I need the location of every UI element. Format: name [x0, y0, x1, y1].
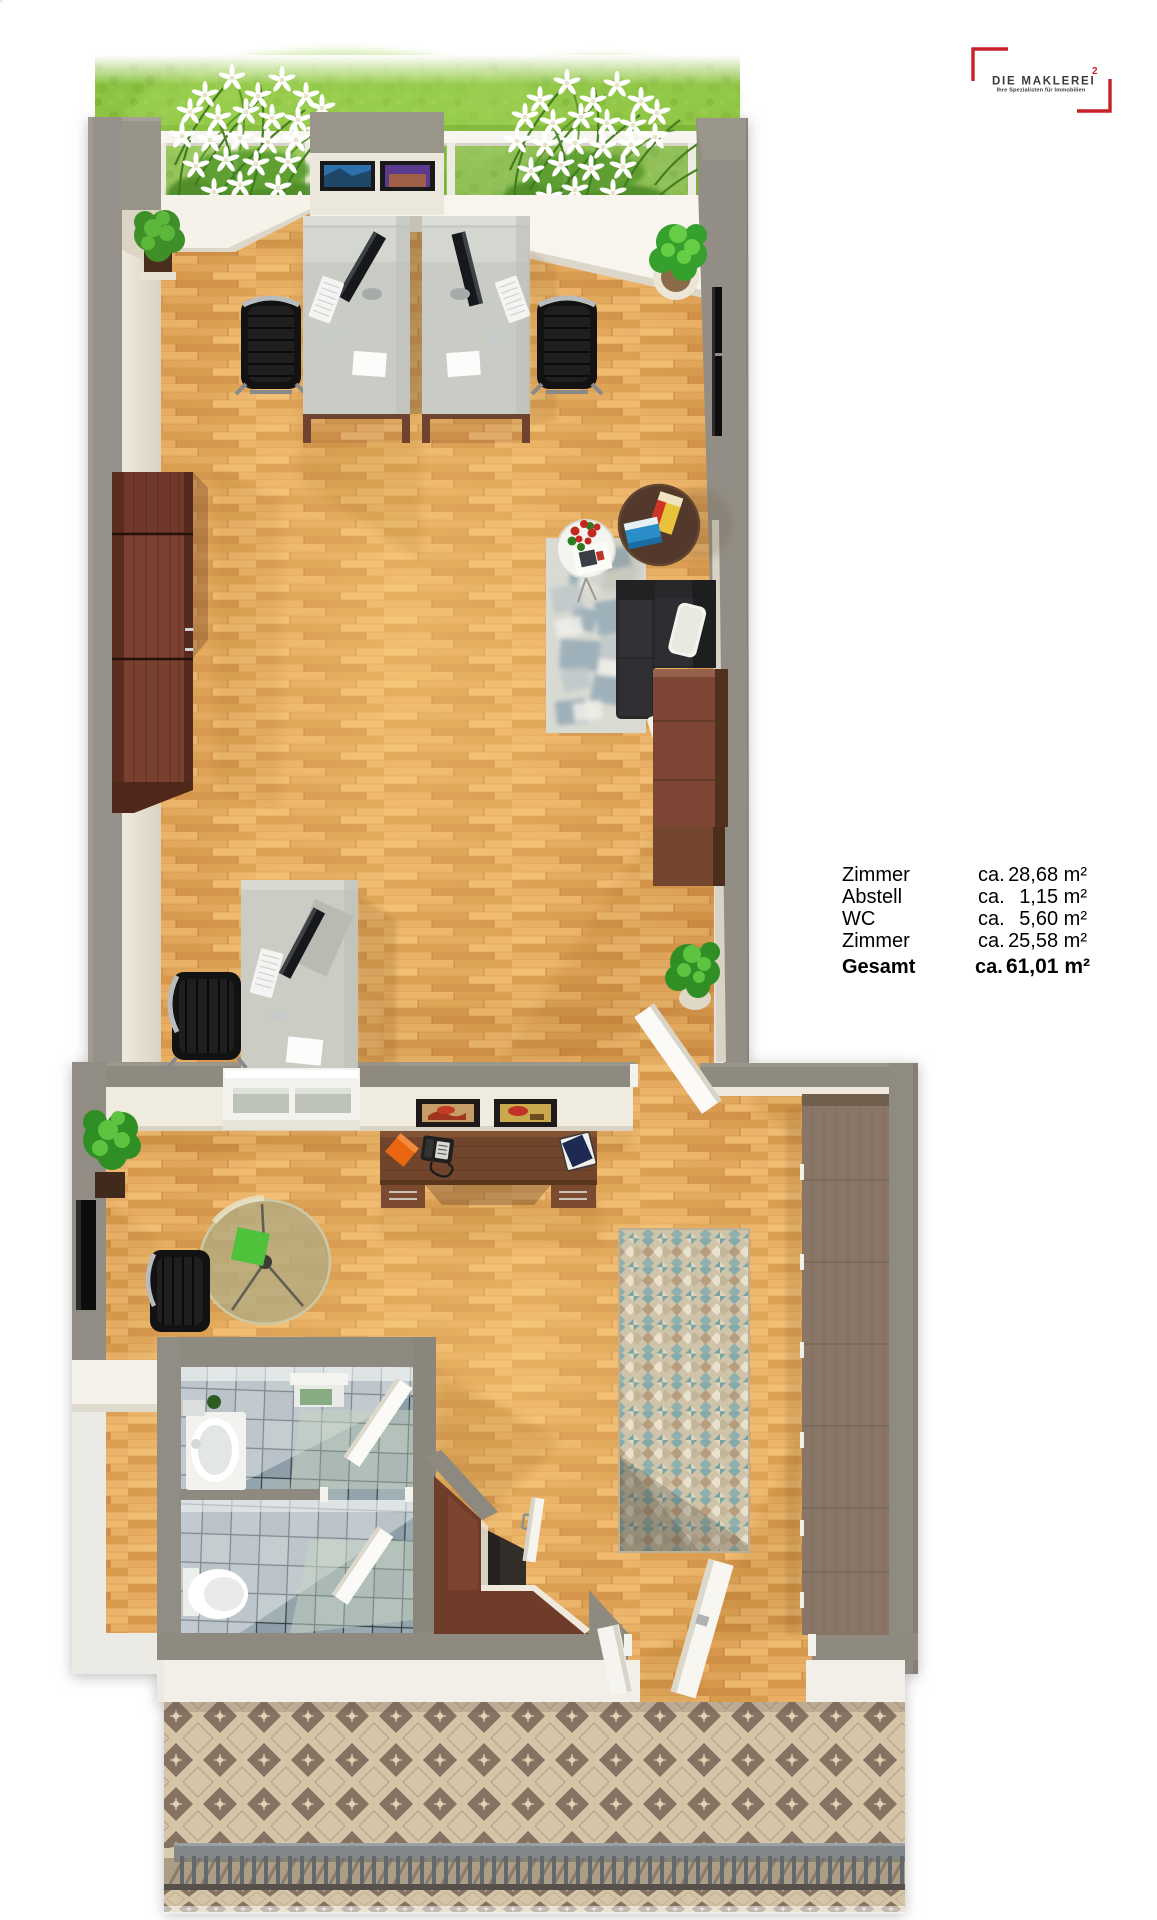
svg-text:2: 2	[1092, 66, 1098, 77]
svg-text:28,68 m²: 28,68 m²	[1008, 864, 1087, 886]
svg-text:Ihre Spezialisten für Immobili: Ihre Spezialisten für Immobilien	[997, 88, 1086, 94]
svg-text:ca.: ca.	[978, 886, 1005, 908]
svg-text:WC: WC	[842, 908, 875, 930]
svg-text:25,58 m²: 25,58 m²	[1008, 930, 1087, 952]
svg-text:ca.: ca.	[978, 864, 1005, 886]
svg-text:Zimmer: Zimmer	[842, 864, 910, 886]
svg-text:Abstell: Abstell	[842, 886, 902, 908]
svg-text:ca.: ca.	[975, 956, 1003, 978]
svg-text:61,01 m²: 61,01 m²	[1006, 955, 1090, 978]
svg-text:ca.: ca.	[978, 930, 1005, 952]
svg-text:ca.: ca.	[978, 908, 1005, 930]
svg-text:1,15 m²: 1,15 m²	[1019, 886, 1087, 908]
svg-text:Gesamt: Gesamt	[842, 956, 916, 978]
svg-text:5,60 m²: 5,60 m²	[1019, 908, 1087, 930]
svg-text:DIE MAKLEREI: DIE MAKLEREI	[992, 76, 1095, 88]
svg-text:Zimmer: Zimmer	[842, 930, 910, 952]
